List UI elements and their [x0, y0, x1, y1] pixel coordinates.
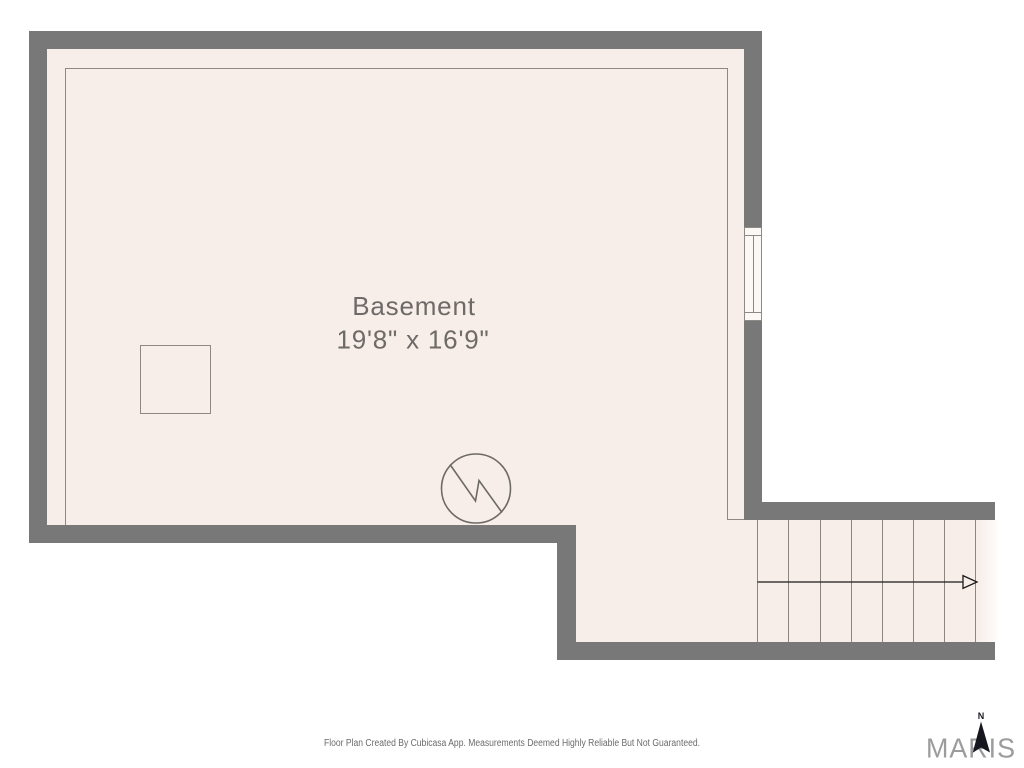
svg-text:N: N	[978, 711, 985, 721]
svg-text:Floor Plan Created By Cubicasa: Floor Plan Created By Cubicasa App. Meas…	[324, 738, 700, 749]
svg-text:MARIS: MARIS	[926, 733, 1016, 764]
svg-text:19'8" x 16'9": 19'8" x 16'9"	[337, 325, 490, 355]
svg-text:Basement: Basement	[352, 291, 475, 321]
